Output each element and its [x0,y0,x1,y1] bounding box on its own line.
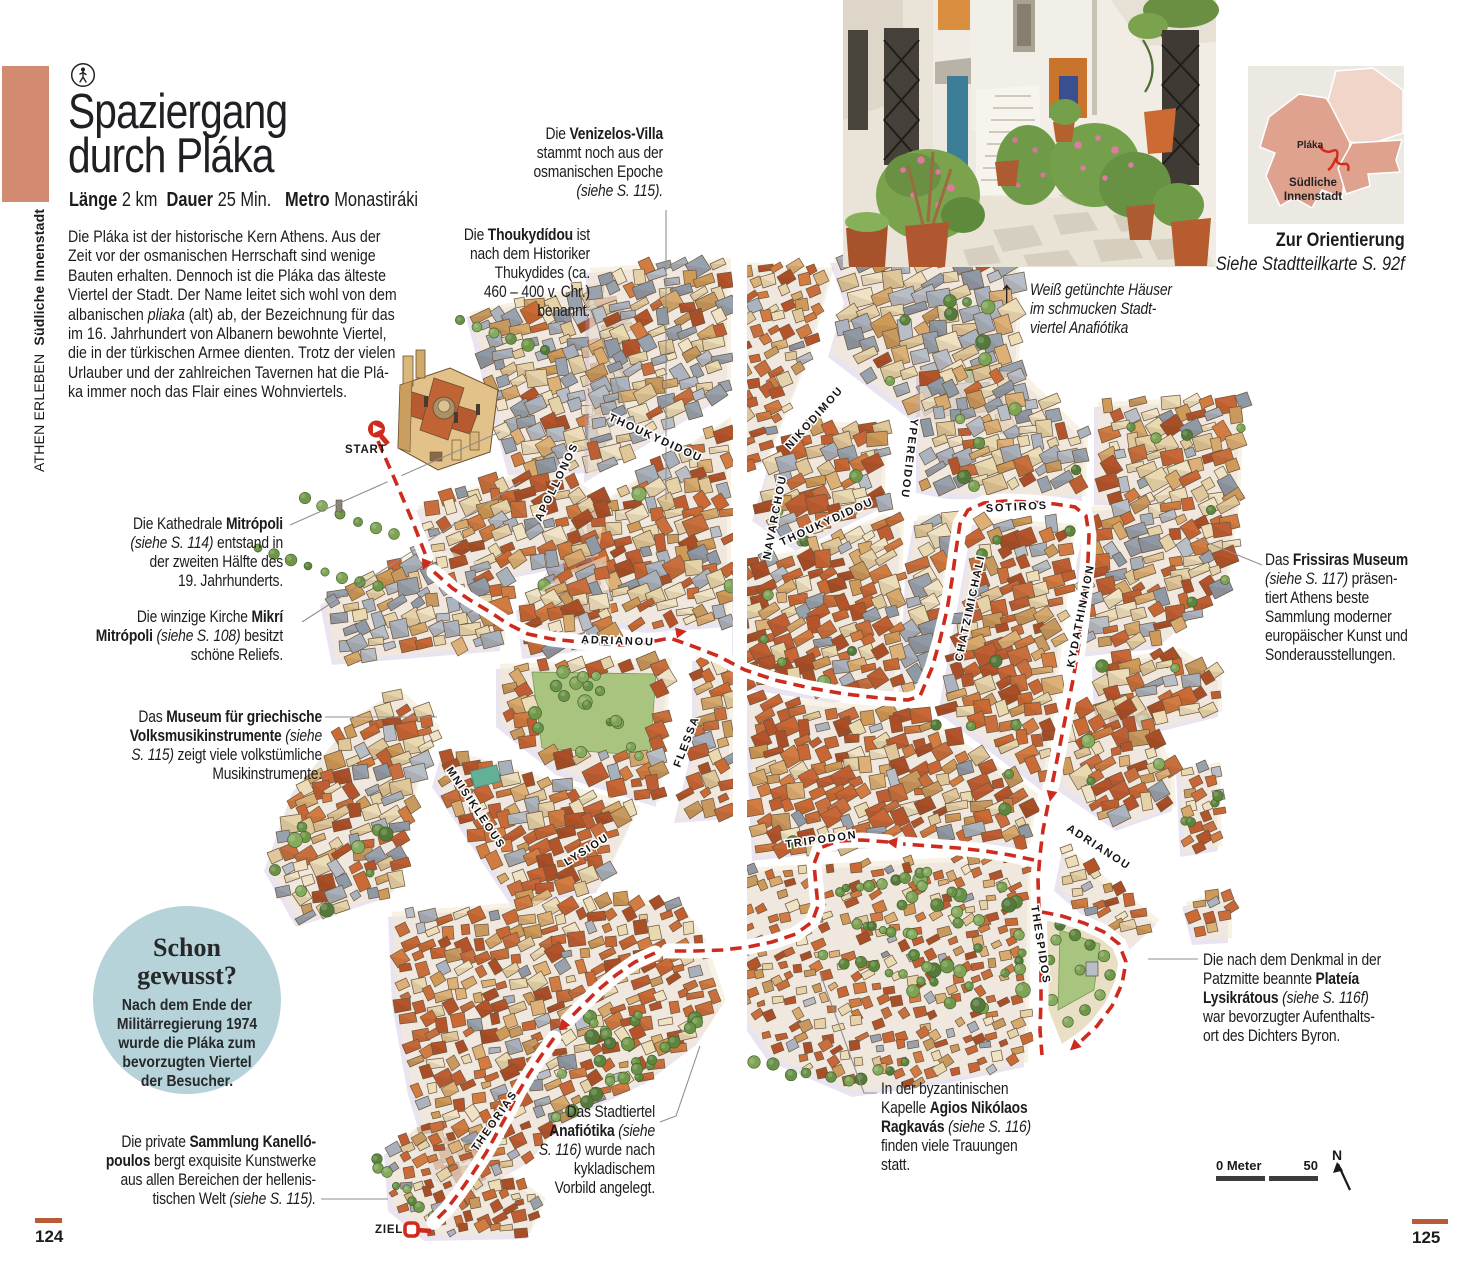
svg-text:ADRIANOU: ADRIANOU [581,634,655,649]
svg-text:START: START [345,444,386,456]
svg-text:Innenstadt: Innenstadt [1284,191,1342,203]
svg-text:Pláka: Pláka [1297,140,1324,151]
svg-text:50: 50 [1304,1158,1318,1173]
svg-text:ZIEL: ZIEL [375,1224,403,1236]
svg-text:0 Meter: 0 Meter [1216,1158,1262,1173]
svg-text:SOTIROS: SOTIROS [986,500,1049,515]
svg-text:N: N [1332,1147,1342,1163]
svg-text:Südliche: Südliche [1289,177,1337,189]
